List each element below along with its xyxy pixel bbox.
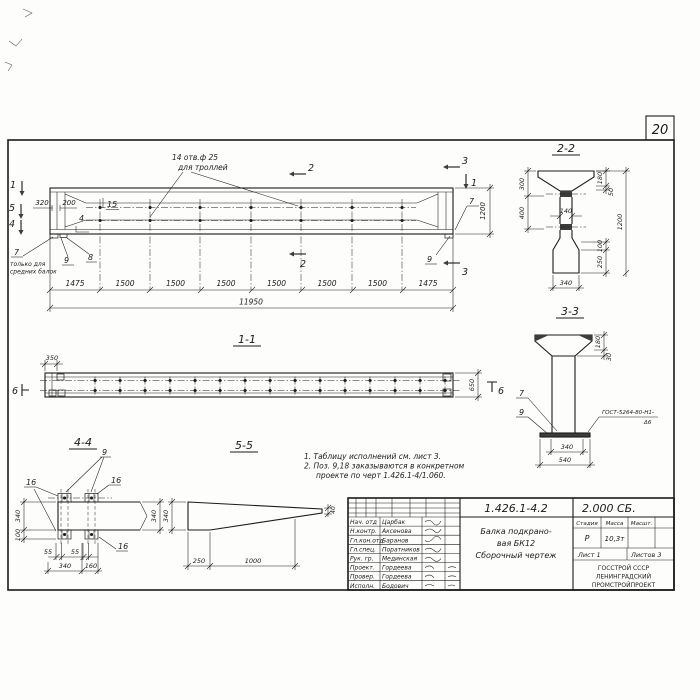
dim-label: 340 <box>162 510 170 522</box>
svg-text:Бодович: Бодович <box>382 583 409 590</box>
sheet-number: Лист 1 <box>577 551 601 559</box>
callout-16-left: 16 <box>24 478 58 531</box>
svg-text:Царбак: Царбак <box>382 519 406 526</box>
svg-text:1200: 1200 <box>479 202 487 220</box>
svg-text:16: 16 <box>111 476 121 485</box>
mass-value: 10,3т <box>605 535 626 543</box>
stage-value: Р <box>585 534 590 543</box>
section-marker-5: 5 <box>9 203 24 219</box>
callout-9: 9 <box>516 408 548 434</box>
svg-text:1475: 1475 <box>65 279 84 288</box>
callout-16-right: 16 <box>97 476 121 494</box>
dim-label: 340 <box>150 510 158 522</box>
drawing-title: Балка подкрано- <box>480 527 551 536</box>
section-marker-2-top: 2 <box>289 163 314 177</box>
dim-label: 30 <box>605 353 613 361</box>
dim-label: 350 <box>46 354 58 362</box>
section-marker-3-top: 3 <box>443 156 468 170</box>
section-1-1: 1-1 350 6 650 6 <box>12 333 504 401</box>
section-marker-6-left: 6 <box>12 384 29 397</box>
total-dim: 11950 <box>47 298 456 312</box>
svg-text:1: 1 <box>471 178 477 189</box>
svg-text:Δ6: Δ6 <box>643 420 652 426</box>
sheet-frame: 20 <box>8 116 674 590</box>
svg-text:9: 9 <box>64 256 69 265</box>
weld-designation: ГОСТ-5264-80-Н1- Δ6 <box>588 410 658 432</box>
svg-text:9: 9 <box>519 408 524 417</box>
dim-label: 650 <box>468 379 476 391</box>
svg-text:Рук. гр.: Рук. гр. <box>350 556 374 563</box>
dim-label: 200 <box>62 199 76 207</box>
svg-text:Аксенова: Аксенова <box>381 528 412 535</box>
dim-label: 1200 <box>616 214 624 231</box>
svg-text:1: 1 <box>10 180 16 191</box>
dim-label: 180 <box>596 172 604 184</box>
bearing-plate-left <box>50 234 58 238</box>
dim-label: 180 <box>594 336 602 348</box>
svg-text:8: 8 <box>88 253 93 262</box>
section-title: 4-4 <box>74 436 92 449</box>
dim-label: 100 <box>14 529 22 541</box>
section-marker-6-right: 6 <box>487 382 504 397</box>
section-marker-4: 4 <box>9 219 24 235</box>
page-number: 20 <box>652 123 669 138</box>
dim-label: 40 <box>330 506 337 514</box>
hole-note: 14 отв.ф 25 <box>172 153 218 162</box>
svg-text:7: 7 <box>519 389 525 398</box>
svg-text:16: 16 <box>26 478 36 487</box>
svg-text:9: 9 <box>102 448 107 457</box>
organization: ЛЕНИНГРАДСКИЙ <box>596 574 651 581</box>
segment-dims: 1475 1500 1500 1500 1500 1500 1500 1475 <box>47 279 456 293</box>
dim-1200-right: 1200 <box>455 184 494 238</box>
svg-text:15: 15 <box>107 200 117 209</box>
section-marker-2-bottom: 2 <box>289 252 306 271</box>
stage-header: Стадия <box>576 521 598 527</box>
svg-text:7: 7 <box>14 248 20 257</box>
svg-text:4: 4 <box>79 214 84 223</box>
svg-text:Баранов: Баранов <box>382 537 409 544</box>
dim-label: 340 <box>14 510 22 522</box>
engineering-drawing: 20 14 отв.ф 25 для троллей <box>0 0 700 700</box>
section-title: 3-3 <box>561 305 579 318</box>
dim-label: 100 <box>596 240 604 252</box>
dim-label: 140 <box>560 207 572 215</box>
drawing-sheet: 20 14 отв.ф 25 для троллей <box>0 0 700 700</box>
dim-label: 400 <box>518 207 526 219</box>
svg-text:Гл.кон.отд: Гл.кон.отд <box>350 537 384 544</box>
dim-label: 1000 <box>245 557 262 565</box>
signature-rows: Нач. отдЦарбак Н.контр.Аксенова Гл.кон.о… <box>350 519 456 590</box>
section-title: 1-1 <box>238 333 256 346</box>
svg-text:Н.контр.: Н.контр. <box>350 528 377 535</box>
notes: 1. Таблицу исполнений см. лист 3. 2. Поз… <box>304 452 465 480</box>
dim-label: 55 <box>44 548 52 556</box>
section-marker-1-left: 1 <box>10 180 25 196</box>
drawing-title: вая БК12 <box>497 539 535 548</box>
note-line: 1. Таблицу исполнений см. лист 3. <box>304 452 441 461</box>
section-4-4: 4-4 9 16 16 <box>14 436 164 574</box>
svg-text:7: 7 <box>469 197 475 206</box>
svg-text:1500: 1500 <box>166 279 185 288</box>
hole-note: для троллей <box>177 163 228 172</box>
section-title: 5-5 <box>235 439 253 452</box>
svg-text:Поратников: Поратников <box>382 546 420 553</box>
svg-text:только для: только для <box>10 261 46 268</box>
note-line: проекте по черт 1.426.1-4/1.060. <box>316 471 446 480</box>
svg-text:5: 5 <box>9 203 15 214</box>
drawing-title: Сборочный чертеж <box>476 551 558 560</box>
svg-text:6: 6 <box>498 386 504 397</box>
doc-number: 1.426.1-4.2 <box>484 502 547 515</box>
dim-label: 540 <box>559 456 571 464</box>
dim-label: 340 <box>561 443 573 451</box>
title-block: 1.426.1-4.2 2.000 СБ. Нач. отдЦарбак Н.к… <box>348 498 674 590</box>
callout-15: 15 <box>103 198 119 210</box>
svg-text:ГОСТ-5264-80-Н1-: ГОСТ-5264-80-Н1- <box>602 410 654 416</box>
dim-label: 250 <box>193 557 205 565</box>
svg-text:2: 2 <box>308 163 314 174</box>
svg-text:1475: 1475 <box>418 279 437 288</box>
svg-text:1500: 1500 <box>115 279 134 288</box>
svg-text:4: 4 <box>9 219 15 230</box>
svg-text:11950: 11950 <box>239 298 263 307</box>
callout-16-bottom: 16 <box>99 537 128 551</box>
svg-text:3: 3 <box>462 156 468 167</box>
dim-label: 340 <box>560 279 572 287</box>
main-elevation-view: 14 отв.ф 25 для троллей 1 5 4 2 2 3 <box>9 153 494 312</box>
svg-text:9: 9 <box>427 255 432 264</box>
doc-code: 2.000 СБ. <box>582 502 636 515</box>
svg-text:средних балок: средних балок <box>10 269 57 276</box>
svg-text:1500: 1500 <box>317 279 336 288</box>
section-2-2: 2-2 300 400 140 180 50 100 250 1200 340 <box>518 142 630 291</box>
callout-9-left: 9 <box>61 238 74 265</box>
svg-text:3: 3 <box>462 267 468 278</box>
svg-text:Гордеева: Гордеева <box>382 565 412 572</box>
svg-text:Проект.: Проект. <box>350 565 375 572</box>
svg-text:6: 6 <box>12 386 18 397</box>
organization: ПРОМСТРОЙПРОЕКТ <box>592 582 656 589</box>
svg-text:1500: 1500 <box>267 279 286 288</box>
section-title: 2-2 <box>557 142 575 155</box>
dim-label: 300 <box>518 178 526 190</box>
organization: ГОССТРОЙ СССР <box>598 565 650 572</box>
svg-text:1500: 1500 <box>368 279 387 288</box>
dim-label: 160 <box>85 562 97 570</box>
section-marker-3-bottom: 3 <box>443 261 468 279</box>
svg-text:2: 2 <box>300 259 306 270</box>
callout-8: 8 <box>67 238 97 262</box>
svg-text:1500: 1500 <box>216 279 235 288</box>
registration-marks <box>5 9 32 71</box>
section-marker-1-right: 1 <box>464 174 478 189</box>
svg-text:Гл.спец.: Гл.спец. <box>350 546 376 553</box>
note-line: 2. Поз. 9,18 заказываются в конкретном <box>304 462 465 471</box>
sheets-total: Листов 3 <box>630 551 661 559</box>
dim-label: 250 <box>596 256 604 268</box>
section-3-3: 3-3 180 30 7 9 ГОСТ-5264-80-Н1- Δ6 <box>516 305 658 468</box>
dim-label: 55 <box>71 548 79 556</box>
dim-label: 50 <box>607 188 615 196</box>
svg-text:Нач. отд: Нач. отд <box>350 519 377 526</box>
svg-text:Мединская: Мединская <box>382 556 417 563</box>
dim-label: 320 <box>35 199 49 207</box>
dim-label: 340 <box>59 562 71 570</box>
svg-text:Провер.: Провер. <box>350 574 375 581</box>
svg-text:Гордеева: Гордеева <box>382 574 412 581</box>
mass-header: Масса <box>606 521 624 527</box>
svg-text:16: 16 <box>118 542 128 551</box>
callout-9-right: 9 <box>425 236 450 264</box>
callout-7-right: 7 <box>455 197 479 230</box>
svg-text:Исполн.: Исполн. <box>350 583 375 590</box>
callout-9: 9 <box>66 448 111 492</box>
scale-header: Масшт. <box>631 521 653 527</box>
